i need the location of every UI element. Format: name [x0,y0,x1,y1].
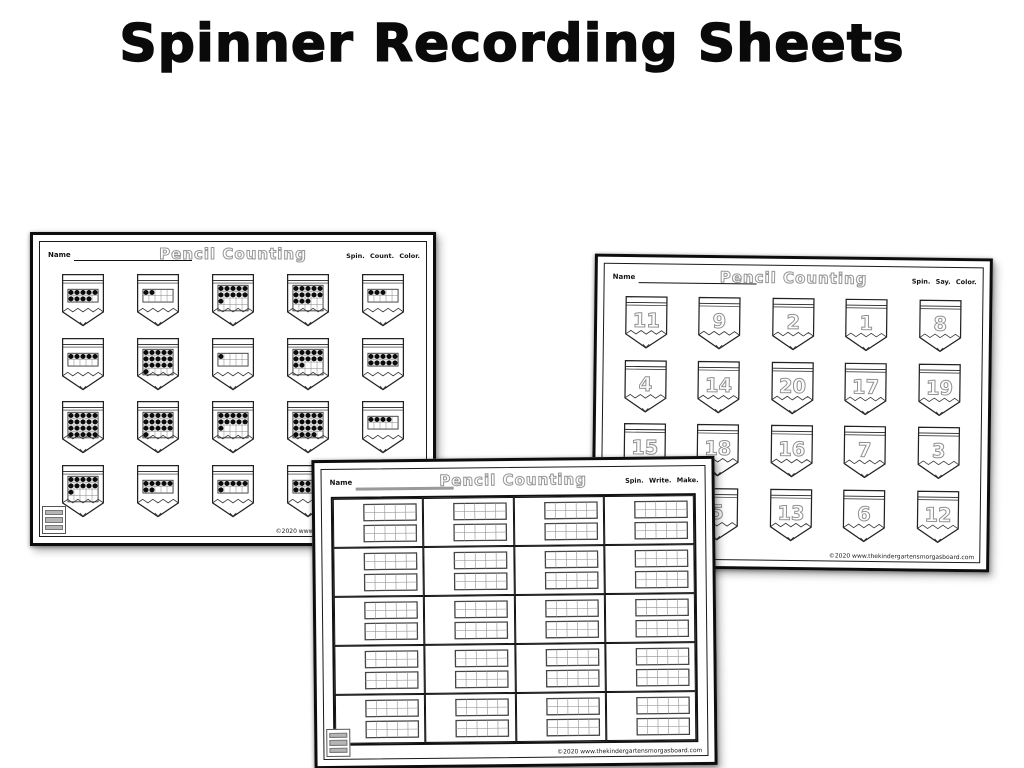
pencil-ten-frame [127,399,189,458]
double-ten-frame [545,644,605,692]
double-ten-frame [544,595,604,643]
write-number-space [335,647,365,694]
pencil-ten-frame [202,336,264,395]
name-label: Name [613,273,636,281]
write-cell [604,495,695,545]
svg-text:2: 2 [786,311,800,334]
pencil-ten-frame [202,272,264,331]
double-ten-frame [545,693,605,741]
pencil-number: 7 [834,424,895,483]
write-number-space [606,595,636,642]
blank-ten-frame [363,552,417,571]
pencil-ten-frame [127,272,189,331]
write-number-space [607,693,637,740]
double-ten-frame [454,547,514,595]
pencil-ten-frame [352,272,414,331]
instructions: Spin. Count. Color. [346,252,420,260]
blank-ten-frame [454,600,508,619]
sheet-spin-write-make: Name Pencil Counting Spin. Write. Make. [311,456,717,768]
blank-ten-frame [455,670,509,689]
write-cell [514,545,605,595]
write-cell [425,693,516,743]
sheet-count-header: Name Pencil Counting Spin. Count. Color. [40,242,426,268]
pencil-ten-frame [277,399,339,458]
blank-ten-frame [365,699,419,718]
pencil-number: 17 [835,360,896,419]
write-cell [605,642,696,692]
pencil-ten-frame [277,272,339,331]
smorgasboard-logo [42,506,66,534]
blank-ten-frame [364,601,418,620]
svg-text:12: 12 [924,503,951,526]
sheet-title: Pencil Counting [439,470,587,490]
blank-ten-frame [635,647,689,666]
double-ten-frame [635,594,695,642]
double-ten-frame [363,548,423,596]
blank-ten-frame [365,720,419,739]
pencil-ten-frame [52,399,114,458]
blank-ten-frame [363,524,417,543]
blank-ten-frame [454,572,508,591]
pencil-ten-frame [127,463,189,522]
write-number-space [425,548,455,595]
pencil-ten-frame [127,336,189,395]
svg-text:4: 4 [639,372,653,395]
double-ten-frame [543,497,603,545]
double-ten-frame [455,694,515,742]
double-ten-frame [634,545,694,593]
double-ten-frame [544,546,604,594]
blank-ten-frame [635,598,689,617]
blank-ten-frame [545,669,599,688]
svg-text:11: 11 [633,309,660,332]
write-cell [514,594,605,644]
write-number-space [605,546,635,593]
write-cell [513,496,604,546]
svg-text:20: 20 [779,374,806,397]
write-number-space [424,499,454,546]
double-ten-frame [453,498,513,546]
write-number-space [515,596,545,643]
svg-text:3: 3 [931,440,945,463]
blank-ten-frame [636,696,690,715]
write-cell [425,644,516,694]
blank-ten-frame [453,523,507,542]
sheet-title: Pencil Counting [720,268,868,288]
pencil-number: 12 [907,488,968,547]
svg-text:1: 1 [860,312,874,335]
pencil-ten-frame [277,336,339,395]
write-number-space [605,497,635,544]
pencil-number: 16 [761,423,822,482]
write-cell [423,497,514,547]
page: Spinner Recording Sheets Name Pencil Cou… [0,0,1024,768]
blank-ten-frame [543,501,597,520]
write-number-space [426,646,456,693]
pencil-ten-frame [202,463,264,522]
blank-ten-frame [546,718,600,737]
pencil-number: 4 [615,357,676,416]
blank-ten-frame [544,599,598,618]
instructions: Spin. Write. Make. [625,476,699,485]
blank-ten-frame [545,648,599,667]
double-ten-frame [363,499,423,547]
write-cell [333,498,424,548]
blank-ten-frame [634,570,688,589]
pencil-number: 8 [909,297,970,356]
svg-text:19: 19 [925,376,952,399]
blank-ten-frame [455,698,509,717]
write-cell [515,692,606,742]
pencil-ten-frame [52,336,114,395]
blank-ten-frame [454,621,508,640]
svg-text:16: 16 [778,438,805,461]
sheet-write-inner: Name Pencil Counting Spin. Write. Make. [320,465,708,760]
blank-ten-frame [365,671,419,690]
page-title: Spinner Recording Sheets [0,14,1024,74]
name-label: Name [48,251,71,259]
blank-ten-frame [635,668,689,687]
write-number-space [516,645,546,692]
double-ten-frame [455,645,515,693]
svg-text:17: 17 [852,375,879,398]
pencil-number: 2 [763,296,824,355]
double-ten-frame [364,646,424,694]
sheet-write-header: Name Pencil Counting Spin. Write. Make. [321,466,704,496]
instructions: Spin. Say. Color. [912,277,977,286]
sheet-title: Pencil Counting [159,245,307,263]
svg-text:13: 13 [777,501,804,524]
blank-ten-frame [634,521,688,540]
svg-text:7: 7 [858,439,872,462]
blank-ten-frame [635,619,689,638]
blank-ten-frame [544,522,598,541]
copyright: ©2020 www.thekindergartensmorgasboard.co… [829,552,974,561]
blank-ten-frame [544,550,598,569]
pencil-number: 19 [909,361,970,420]
svg-text:8: 8 [933,313,947,336]
blank-ten-frame [636,717,690,736]
pencil-ten-frame [202,399,264,458]
blank-ten-frame [544,571,598,590]
write-cell [424,546,515,596]
pencil-ten-frame [352,399,414,458]
blank-ten-frame [545,620,599,639]
blank-ten-frame [365,650,419,669]
double-ten-frame [634,496,694,544]
svg-text:9: 9 [713,310,727,333]
double-ten-frame [364,597,424,645]
svg-text:6: 6 [857,502,871,525]
pencil-number: 11 [616,294,677,353]
write-number-space [606,644,636,691]
blank-ten-frame [634,500,688,519]
write-cell [333,547,424,597]
pencil-number: 9 [689,295,750,354]
blank-ten-frame [634,549,688,568]
write-number-space [516,694,546,741]
write-number-space [425,597,455,644]
blank-ten-frame [364,622,418,641]
write-cell [424,595,515,645]
pencil-ten-frame [352,336,414,395]
blank-ten-frame [454,551,508,570]
pencil-ten-frame [52,272,114,331]
blank-ten-frame [364,573,418,592]
pencil-number: 1 [836,297,897,356]
pencil-number: 6 [834,487,895,546]
write-cell [605,593,696,643]
write-cell [604,544,695,594]
double-ten-frame [636,692,696,740]
sheet-say-header: Name Pencil Counting Spin. Say. Color. [604,264,982,295]
blank-ten-frame [453,502,507,521]
svg-text:14: 14 [705,373,732,396]
blank-frame-table [331,493,699,746]
blank-ten-frame [455,649,509,668]
write-number-space [335,598,365,645]
write-number-space [514,498,544,545]
write-number-space [515,547,545,594]
smorgasboard-logo [326,729,350,757]
write-number-space [334,500,364,547]
pencil-number: 13 [760,486,821,545]
blank-ten-frame [455,719,509,738]
write-cell [515,643,606,693]
name-label: Name [330,479,353,487]
double-ten-frame [365,695,425,743]
write-number-space [334,549,364,596]
write-cell [606,691,697,741]
pencil-number: 3 [908,424,969,483]
pencil-number: 20 [762,359,823,418]
copyright: ©2020 www.thekindergartensmorgasboard.co… [557,747,702,756]
double-ten-frame [454,596,514,644]
double-ten-frame [635,643,695,691]
write-number-space [426,695,456,742]
pencil-number: 14 [688,358,749,417]
blank-ten-frame [363,503,417,522]
write-cell [334,645,425,695]
blank-ten-frame [546,697,600,716]
write-cell [334,596,425,646]
